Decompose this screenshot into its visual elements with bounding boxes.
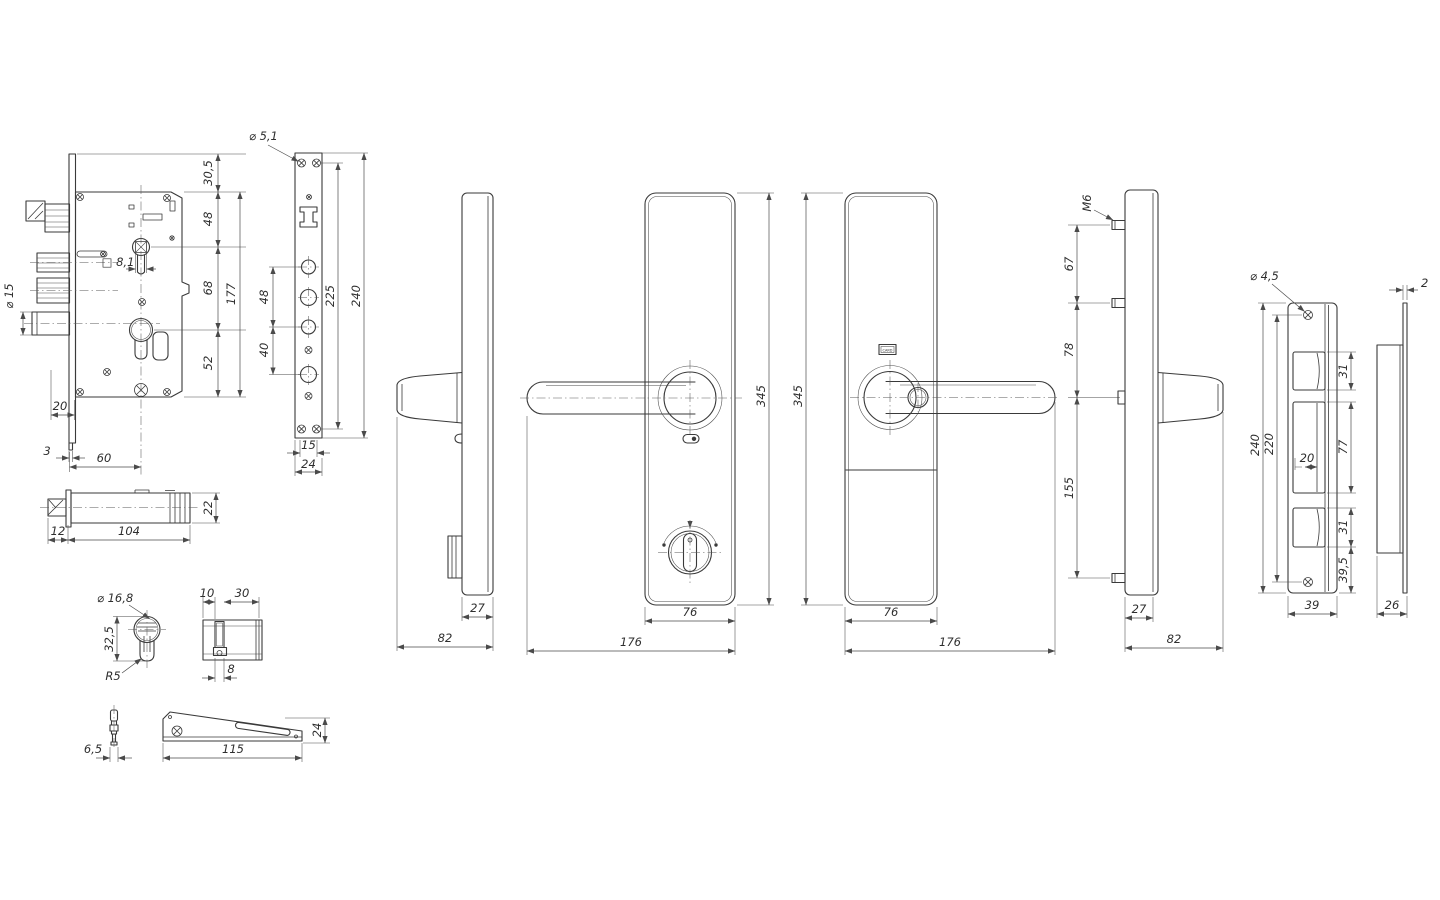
dim-body-height-22: 22: [201, 501, 215, 516]
thumbturn: [658, 520, 722, 586]
dim-body-height: 177: [224, 282, 238, 305]
strike-slot: [235, 722, 290, 736]
key-view: 6,5: [84, 705, 132, 762]
exterior-dimensions-left: 345: [791, 193, 843, 605]
technical-drawing: ⌀ 15 30,5 48 68 52 177 □ 8,1 20 3 60: [0, 0, 1440, 900]
lock-body-dimensions: ⌀ 15 30,5 48 68 52 177 □ 8,1 20 3 60: [2, 154, 246, 472]
dim-cyl-height: 32,5: [102, 626, 116, 652]
dim-interior-width: 176: [620, 635, 642, 649]
flange-profile: [1403, 303, 1407, 593]
box-strike-cutouts: [1293, 352, 1325, 547]
dim-cyl-radius: R5: [105, 669, 120, 683]
side-a-dimensions: 27 82: [397, 417, 493, 651]
dim-interior-plate-width: 76: [683, 605, 698, 619]
key-dimensions: 6,5: [84, 742, 132, 762]
box-strike-side-view: 2 26: [1377, 276, 1428, 618]
dim-stud-thread: M6: [1080, 194, 1094, 211]
dim-total-depth-82: 82: [438, 631, 453, 645]
card-reader: CARD: [879, 345, 896, 355]
dim-square: □ 8,1: [102, 255, 135, 269]
dim-key-width: 6,5: [84, 742, 102, 756]
interior-front-view: 345 76 176: [520, 193, 774, 655]
latch-body: [45, 204, 70, 232]
dim-exterior-plate-width: 76: [884, 605, 899, 619]
box-profile: [1377, 345, 1403, 553]
box-strike-front-view: ⌀ 4,5 20 31 77 31 39,5 240 220 39: [1248, 269, 1356, 618]
faceplate-dimensions: ⌀ 5,1 48 40 225 240 15 24: [249, 129, 368, 476]
dim-plate-depth-27: 27: [470, 601, 485, 615]
lock-body-front-view: ⌀ 15 30,5 48 68 52 177 □ 8,1 20 3 60: [2, 154, 246, 476]
dim-span-67: 67: [1062, 256, 1076, 271]
dim-depth-104: 104: [118, 524, 140, 538]
usb-port: [448, 536, 462, 578]
dim-backset-20: 20: [53, 399, 68, 413]
dim-screw-span: 225: [323, 285, 337, 307]
dim-span-78: 78: [1062, 343, 1076, 358]
card-reader-label: CARD: [883, 349, 893, 353]
dim-slot-width: 15: [301, 438, 316, 452]
dim-latch-12: 12: [51, 524, 66, 538]
body-side: [71, 493, 190, 523]
interior-side-view: M6 27 82: [1080, 190, 1223, 652]
dim-interior-height: 345: [754, 385, 768, 407]
dim-span-155: 155: [1062, 477, 1076, 499]
dim-cut-31b: 31: [1336, 520, 1350, 535]
drawing-canvas: ⌀ 15 30,5 48 68 52 177 □ 8,1 20 3 60: [0, 0, 1440, 900]
box-strike-dimensions: ⌀ 4,5 20 31 77 31 39,5 240 220 39: [1248, 269, 1356, 618]
dim-box-depth-26: 26: [1385, 598, 1400, 612]
dim-box-screw-dia: ⌀ 4,5: [1250, 269, 1279, 283]
dim-cut-31a: 31: [1336, 364, 1350, 379]
flange: [66, 490, 71, 527]
dim-backset-60: 60: [97, 451, 112, 465]
faceplate-holes: [298, 256, 319, 385]
handle-profile-b: [1158, 373, 1223, 424]
box-strike-plate: [1288, 303, 1337, 593]
exterior-front-view: 345 CARD 76 176 67 78 155: [791, 193, 1120, 655]
cylinder-side-view: 10 30 8: [200, 586, 262, 682]
cylinder-front-view: ⌀ 16,8 32,5 R5: [97, 591, 166, 683]
screw-bosses: [77, 194, 175, 397]
cylinder-front-dimensions: ⌀ 16,8 32,5 R5: [97, 591, 150, 683]
dim-cyl-dia: ⌀ 16,8: [97, 591, 133, 605]
dim-box-screw-span-220: 220: [1262, 433, 1276, 455]
lock-body-side-view: 22 12 104: [40, 490, 220, 544]
dim-total-depth-82b: 82: [1167, 632, 1182, 646]
stud-span-dimensions: 67 78 155: [1062, 225, 1120, 578]
exterior-plate: [845, 193, 937, 605]
dim-strike-width: 24: [310, 723, 324, 738]
latch-cutout: [300, 207, 317, 227]
exterior-dimensions-bottom: 76 176: [845, 402, 1055, 655]
side-b-dimensions: M6 27 82: [1080, 194, 1223, 652]
dim-cam-8: 8: [227, 662, 234, 676]
dim-len-10: 10: [200, 586, 215, 600]
mounting-studs: [1112, 221, 1125, 583]
dim-flange-thickness-2: 2: [1421, 276, 1428, 290]
dim-tongue-20: 20: [1300, 451, 1315, 465]
dim-cut-77: 77: [1336, 439, 1350, 454]
dim-plate-depth-27b: 27: [1132, 602, 1147, 616]
cylinder-hole: [130, 319, 169, 361]
dim-plate-thickness: 3: [43, 444, 50, 458]
dim-span-48: 48: [257, 290, 271, 305]
dim-exterior-width: 176: [939, 635, 961, 649]
dim-bottom-span: 52: [201, 356, 215, 371]
dim-span-40: 40: [257, 343, 271, 358]
dim-bolt-dia: ⌀ 15: [2, 283, 16, 308]
interior-dimensions: 345 76 176: [527, 193, 774, 655]
dim-box-length-240: 240: [1248, 434, 1262, 456]
dim-screw-dia: ⌀ 5,1: [249, 129, 278, 143]
cylinder-side-dimensions: 10 30 8: [200, 586, 259, 682]
dim-top-offset: 30,5: [201, 160, 215, 186]
exterior-side-view: 27 82: [397, 193, 493, 651]
dim-cylinder-span: 68: [201, 281, 215, 296]
dim-follower-span: 48: [201, 212, 215, 227]
dim-offset-39-5: 39,5: [1336, 557, 1350, 583]
mechanism-details: [77, 201, 175, 257]
strike-dimensions: 115 24: [163, 718, 330, 762]
strike-plate-view: 115 24: [163, 712, 330, 762]
button-profile: [455, 434, 462, 443]
faceplate-view: ⌀ 5,1 48 40 225 240 15 24: [249, 129, 368, 476]
dim-length: 240: [349, 285, 363, 307]
handle-profile: [397, 373, 462, 424]
dim-box-width-39: 39: [1305, 598, 1320, 612]
dim-width: 24: [301, 457, 316, 471]
dim-len-30: 30: [235, 586, 250, 600]
privacy-indicator: [683, 435, 699, 444]
faceplate-foot: [69, 443, 73, 450]
lock-side-dimensions: 22 12 104: [48, 493, 220, 544]
dim-strike-length: 115: [222, 742, 244, 756]
dim-exterior-height: 345: [791, 385, 805, 407]
